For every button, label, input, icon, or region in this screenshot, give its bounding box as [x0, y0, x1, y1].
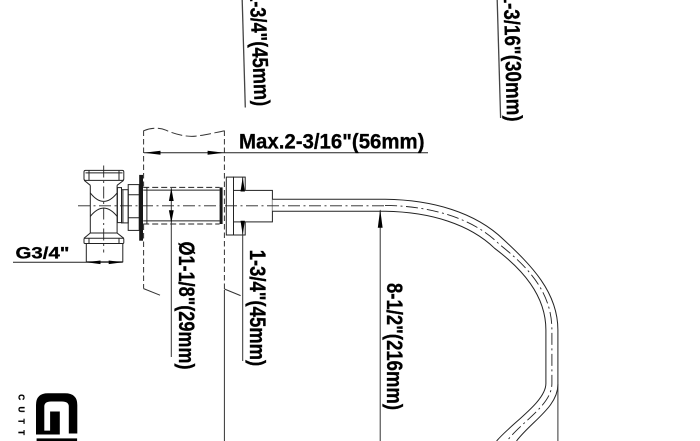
- svg-text:G3/4": G3/4": [16, 244, 70, 263]
- svg-text:1-3/4"(45mm): 1-3/4"(45mm): [245, 250, 270, 367]
- svg-text:8-1/2"(216mm): 8-1/2"(216mm): [382, 283, 407, 410]
- svg-text:1-3/16"(30mm): 1-3/16"(30mm): [499, 0, 527, 122]
- svg-text:1-3/4"(45mm): 1-3/4"(45mm): [245, 0, 275, 107]
- svg-text:Ø1-1/8"(29mm): Ø1-1/8"(29mm): [174, 242, 199, 370]
- svg-text:CUTT: CUTT: [17, 394, 26, 441]
- svg-text:Max.2-3/16"(56mm): Max.2-3/16"(56mm): [239, 129, 425, 153]
